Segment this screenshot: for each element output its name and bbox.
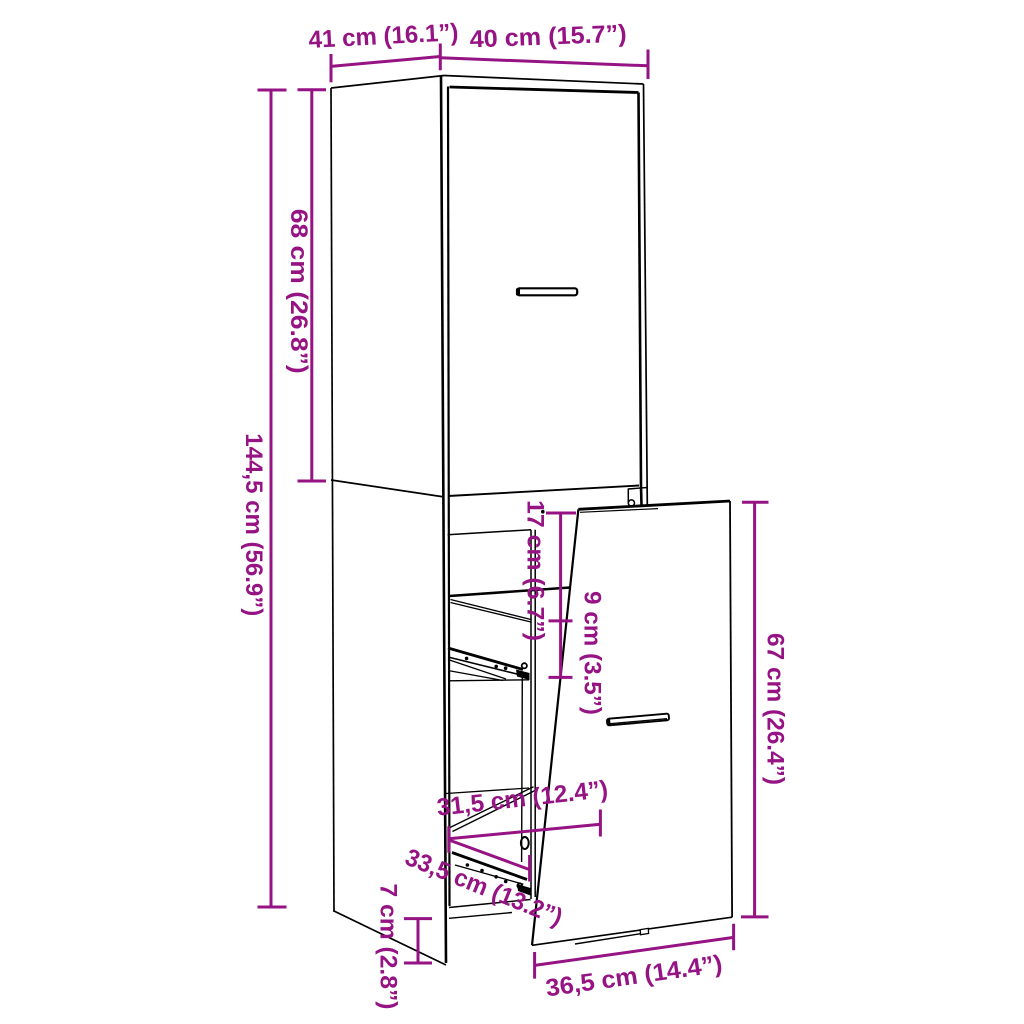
svg-text:9 cm (3.5”): 9 cm (3.5”) bbox=[578, 591, 605, 715]
svg-text:144,5 cm (56.9”): 144,5 cm (56.9”) bbox=[240, 433, 267, 616]
svg-text:17 cm (6.7”): 17 cm (6.7”) bbox=[522, 500, 549, 641]
svg-text:67 cm (26.4”): 67 cm (26.4”) bbox=[761, 633, 788, 785]
svg-text:7 cm (2.8”): 7 cm (2.8”) bbox=[375, 884, 402, 1010]
svg-text:68 cm (26.8”): 68 cm (26.8”) bbox=[285, 209, 312, 374]
